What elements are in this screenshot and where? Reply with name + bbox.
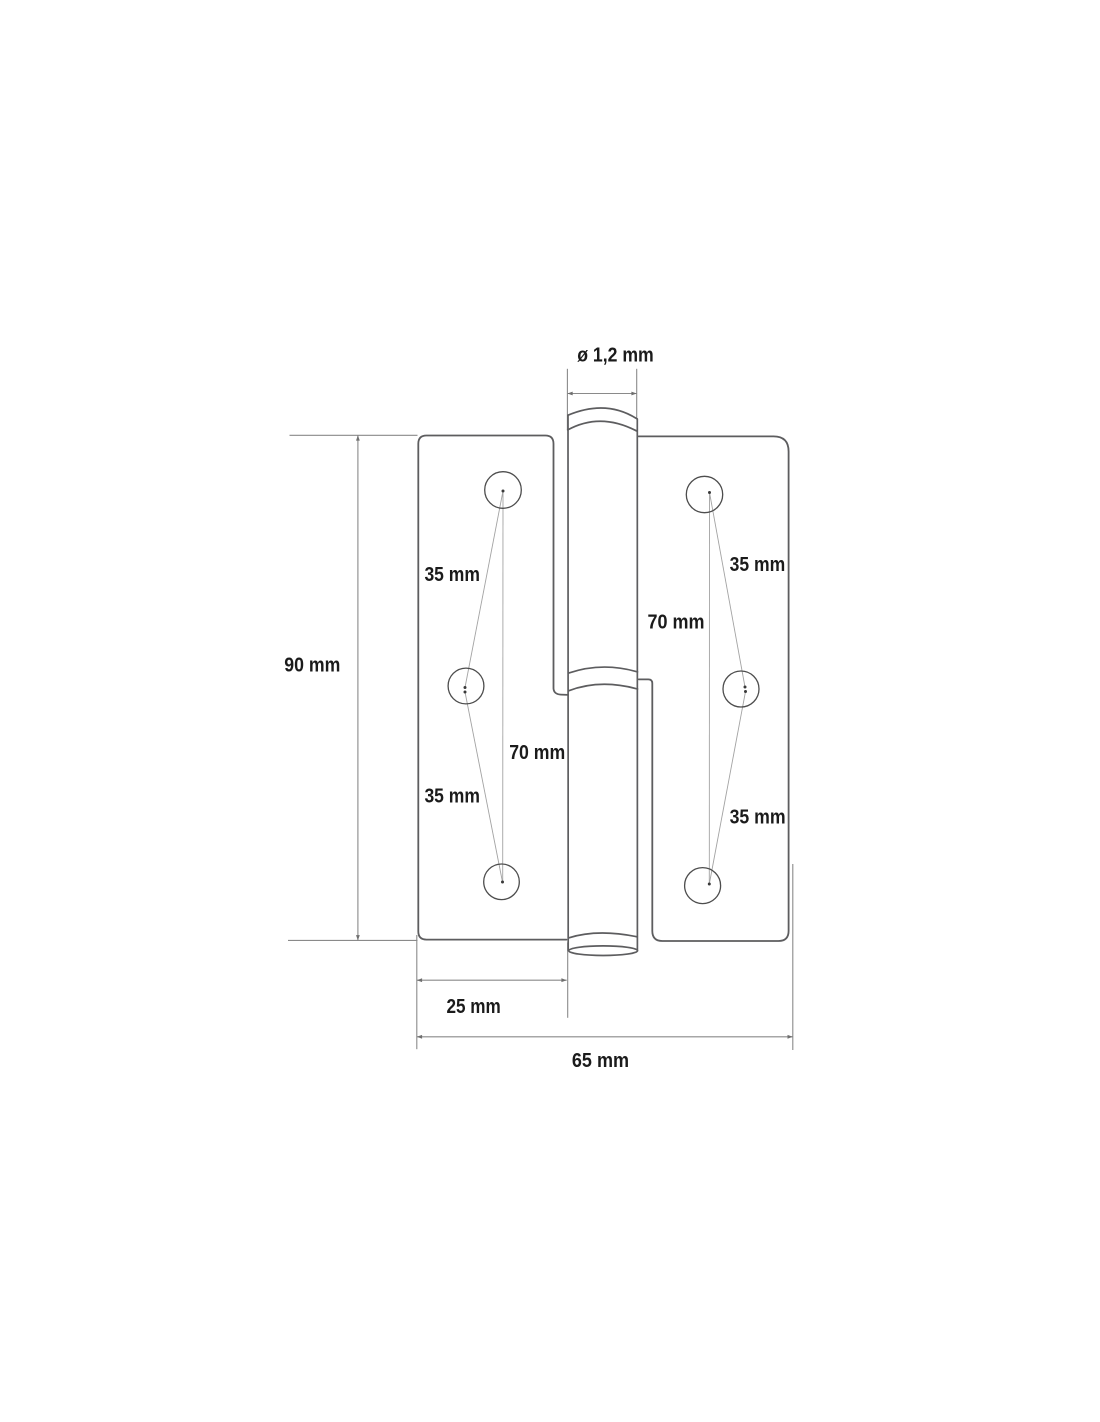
svg-text:25 mm: 25 mm: [446, 996, 500, 1018]
svg-text:35 mm: 35 mm: [424, 786, 480, 808]
svg-text:ø 1,2 mm: ø 1,2 mm: [577, 345, 654, 367]
svg-text:70 mm: 70 mm: [509, 742, 565, 764]
svg-text:35 mm: 35 mm: [730, 554, 786, 576]
svg-text:35 mm: 35 mm: [424, 564, 480, 586]
svg-text:70 mm: 70 mm: [648, 612, 705, 634]
svg-text:65 mm: 65 mm: [572, 1050, 629, 1072]
svg-text:35 mm: 35 mm: [730, 806, 786, 828]
svg-text:90 mm: 90 mm: [284, 655, 340, 677]
